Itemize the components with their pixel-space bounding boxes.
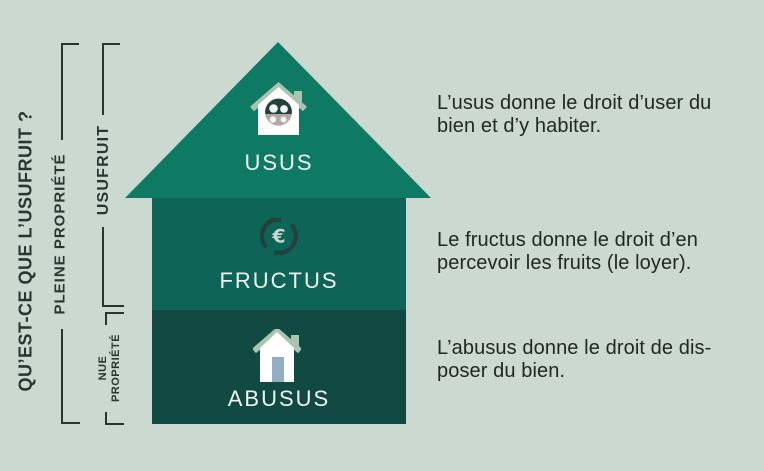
abusus-description-line2: poser du bien. [437, 360, 739, 383]
usus-description-line1: L’usus donne le droit d’user du [437, 92, 739, 115]
door [272, 357, 284, 382]
usus-description-line2: bien et d’y habiter. [437, 115, 739, 138]
usufruit-infographic: QU’EST-CE QUE L’USUFRUIT ? PLEINE PROPRI… [0, 0, 764, 471]
fructus-label: FRUCTUS [152, 270, 406, 292]
label-nue-line2: PROPRIÉTÉ [110, 334, 123, 402]
abusus-description-line1: L’abusus donne le droit de dis- [437, 337, 739, 360]
usus-label: USUS [152, 152, 406, 174]
family-house-icon [250, 82, 307, 135]
fructus-description: Le fructus donne le droit d’en percevoir… [437, 229, 739, 275]
chimney [294, 91, 302, 102]
abusus-label: ABUSUS [152, 388, 406, 410]
abusus-description: L’abusus donne le droit de dis- poser du… [437, 337, 739, 383]
label-nue-line1: NUE [97, 334, 110, 402]
euro-cycle-icon: € [257, 214, 301, 258]
usus-description: L’usus donne le droit d’user du bien et … [437, 92, 739, 138]
chimney [291, 335, 299, 347]
fructus-description-line2: percevoir les fruits (le loyer). [437, 252, 739, 275]
euro-symbol: € [271, 226, 285, 248]
fructus-description-line1: Le fructus donne le droit d’en [437, 229, 739, 252]
label-usufruit: USUFRUIT [95, 125, 113, 215]
house-icon [253, 329, 301, 382]
page-title: QU’EST-CE QUE L’USUFRUIT ? [16, 110, 37, 391]
label-pleine-propriete: PLEINE PROPRIÉTÉ [52, 153, 69, 314]
label-nue-propriete: NUE PROPRIÉTÉ [97, 334, 123, 402]
